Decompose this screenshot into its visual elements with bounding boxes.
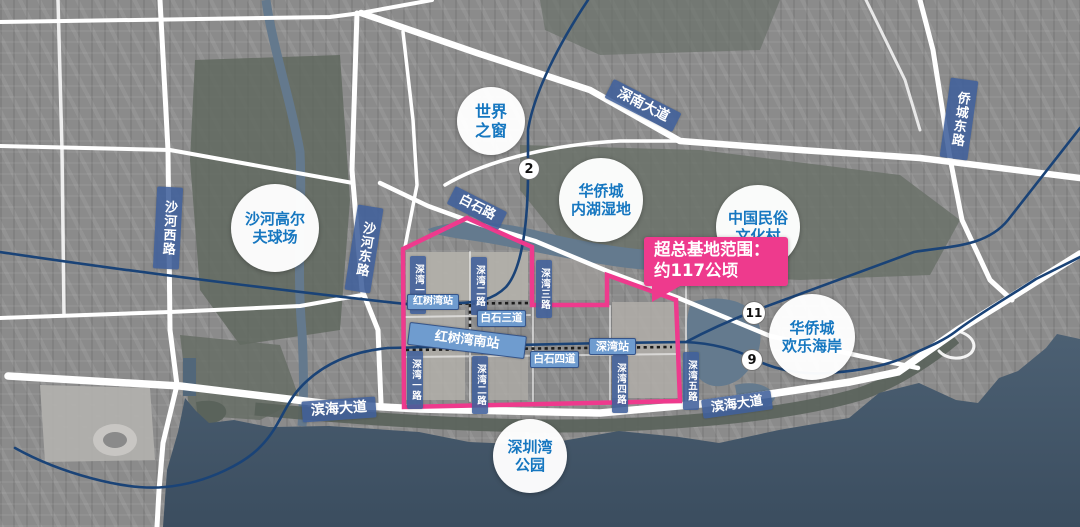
- place-oct-happy-coast: 华侨城 欢乐海岸: [769, 294, 855, 380]
- road-site-west-edge: [403, 32, 417, 247]
- road-label-shahe-west: 沙河西路: [153, 186, 183, 269]
- place-shenzhen-bay-park: 深圳湾 公园: [493, 419, 567, 493]
- place-label-line: 沙河高尔: [245, 210, 305, 228]
- callout-line-2: 约117公顷: [654, 261, 782, 282]
- satellite-planning-map: 沙河西路 沙河东路 侨城东路 白石路 深南大道 滨海大道 滨海大道 深湾一路 深…: [0, 0, 1080, 527]
- metro-badge-line-9: 9: [741, 349, 763, 371]
- place-window-of-the-world: 世界 之窗: [457, 87, 525, 155]
- street-label-baishi-3: 白石三道: [477, 310, 526, 327]
- place-label-line: 深圳湾: [507, 438, 552, 456]
- place-shahe-golf-course: 沙河高尔 夫球场: [231, 184, 319, 272]
- station-label-shenwan: 深湾站: [589, 338, 636, 355]
- stadium-oval-inner: [103, 432, 127, 448]
- site-area-callout: 超总基地范围： 约117公顷: [644, 237, 788, 286]
- place-label-line: 欢乐海岸: [782, 337, 842, 355]
- station-label-hongshuwan: 红树湾站: [407, 294, 459, 310]
- place-label-line: 中国民俗: [728, 209, 788, 227]
- street-label-shenwan-3: 深湾三路: [536, 260, 552, 318]
- street-label-shenwan-4: 深湾四路: [612, 355, 628, 413]
- street-label-shenwan-2-north: 深湾二路: [471, 257, 487, 315]
- north-trees-terrain: [540, 0, 780, 55]
- street-label-shenwan-5: 深湾五路: [683, 352, 699, 410]
- metro-badge-line-2: 2: [518, 158, 540, 180]
- stadium-area: [40, 385, 155, 462]
- street-label-baishi-4: 白石四道: [530, 351, 579, 368]
- place-label-line: 之窗: [475, 121, 507, 140]
- road-west-vertical: [58, 0, 64, 315]
- place-oct-inner-lake-wetland: 华侨城 内湖湿地: [559, 158, 643, 242]
- place-label-line: 华侨城: [578, 182, 623, 200]
- road-north-horizontal: [0, 0, 432, 22]
- road-northeast-small: [866, 0, 920, 130]
- place-label-line: 公园: [515, 456, 545, 474]
- callout-line-1: 超总基地范围：: [654, 240, 782, 261]
- place-label-line: 华侨城: [789, 319, 834, 337]
- metro-badge-line-11: 11: [742, 301, 766, 325]
- place-label-line: 世界: [475, 102, 507, 121]
- place-label-line: 夫球场: [252, 228, 297, 246]
- street-label-shenwan-1-south: 深湾一路: [407, 351, 423, 409]
- place-label-line: 内湖湿地: [571, 200, 631, 218]
- street-label-shenwan-2-south: 深湾二路: [472, 356, 488, 414]
